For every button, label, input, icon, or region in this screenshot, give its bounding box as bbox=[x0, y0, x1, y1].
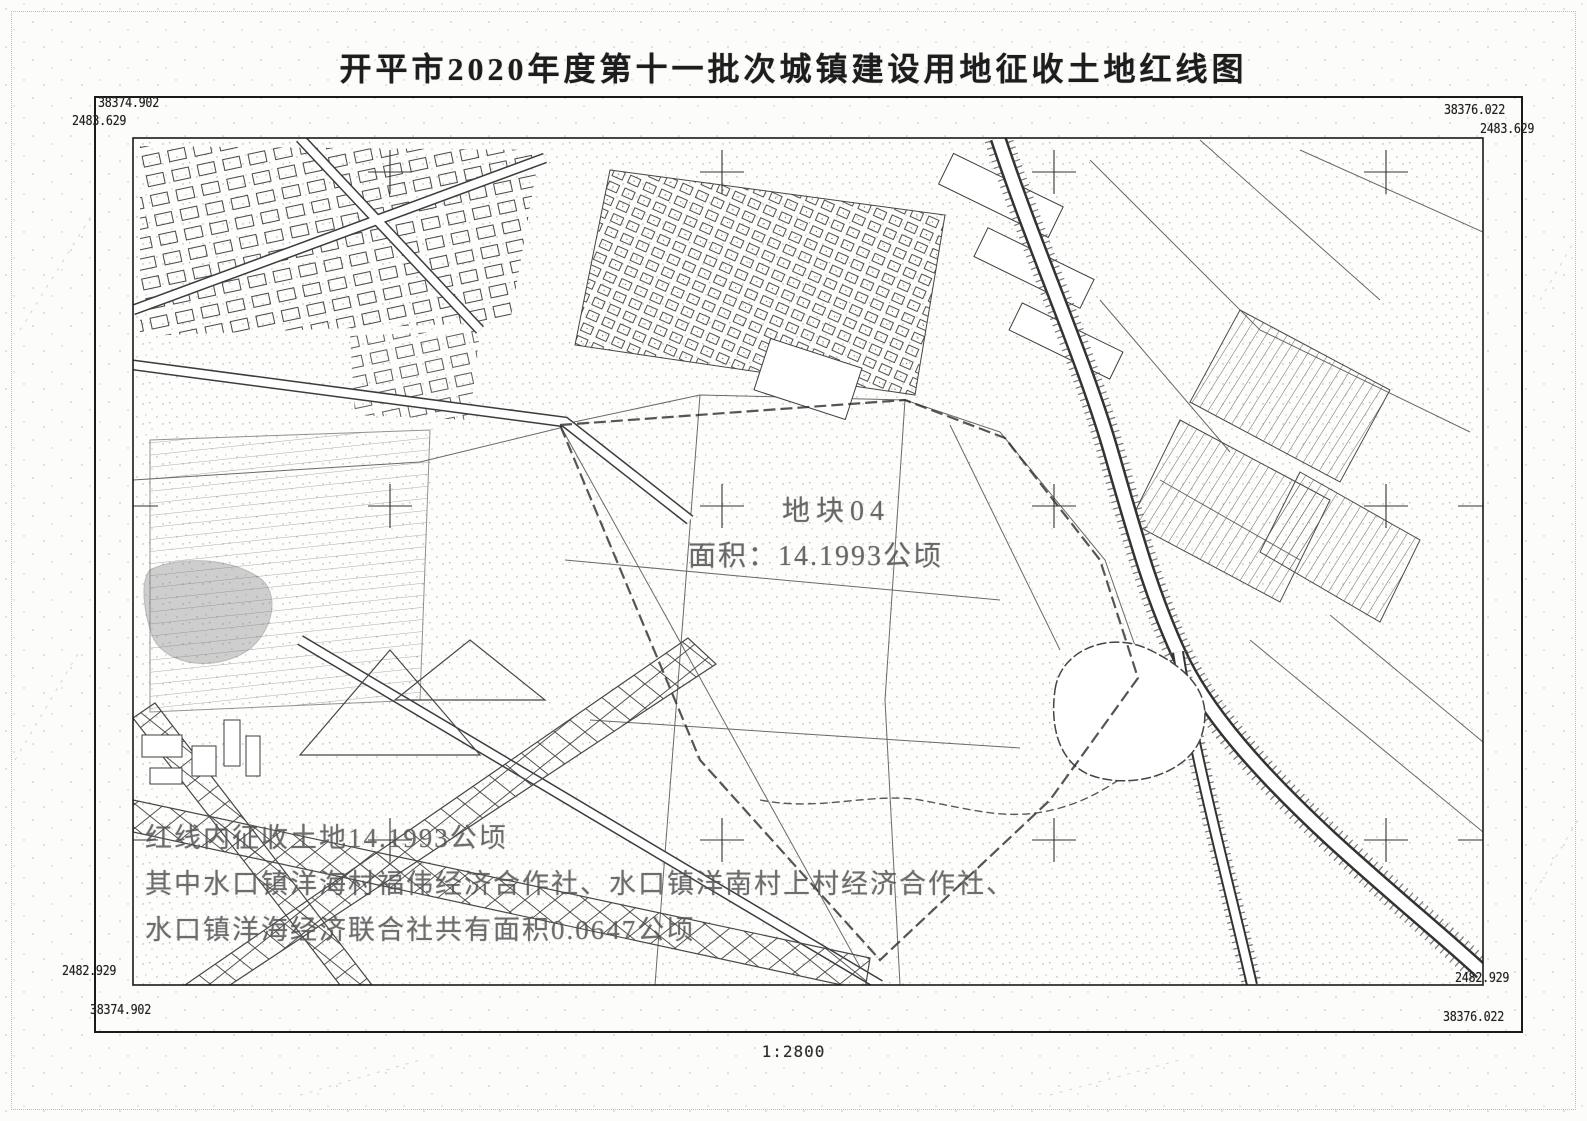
coord-bottom-right-y: 2482.929 bbox=[1455, 971, 1509, 986]
annotation-line-3: 水口镇洋海经济联合社共有面积0.0647公顷 bbox=[145, 908, 695, 947]
coord-bottom-left-y: 2482.929 bbox=[62, 964, 116, 979]
annotation-line-2: 其中水口镇洋海村福伟经济合作社、水口镇洋南村上村经济合作社、 bbox=[145, 862, 1015, 901]
coord-bottom-right-x: 38376.022 bbox=[1443, 1010, 1504, 1025]
coord-top-right-y: 2483.629 bbox=[1480, 122, 1534, 137]
coord-bottom-left-x: 38374.902 bbox=[90, 1003, 151, 1018]
parcel-id-label: 地块04 bbox=[782, 489, 890, 529]
coord-top-left-y: 2483.629 bbox=[72, 114, 126, 129]
coord-top-right-x: 38376.022 bbox=[1444, 103, 1505, 118]
scanned-redline-map-page: { "page": { "title": "开平市2020年度第十一批次城镇建设… bbox=[0, 0, 1587, 1121]
paddy-strips bbox=[144, 430, 430, 712]
annotation-line-1: 红线内征收土地14.1993公顷 bbox=[145, 816, 508, 855]
parcel-area-label: 面积：14.1993公顷 bbox=[688, 534, 943, 574]
map-title: 开平市2020年度第十一批次城镇建设用地征收土地红线图 bbox=[0, 44, 1587, 90]
scale-label: 1:2800 bbox=[0, 1042, 1587, 1061]
coord-top-left-x: 38374.902 bbox=[98, 96, 159, 111]
